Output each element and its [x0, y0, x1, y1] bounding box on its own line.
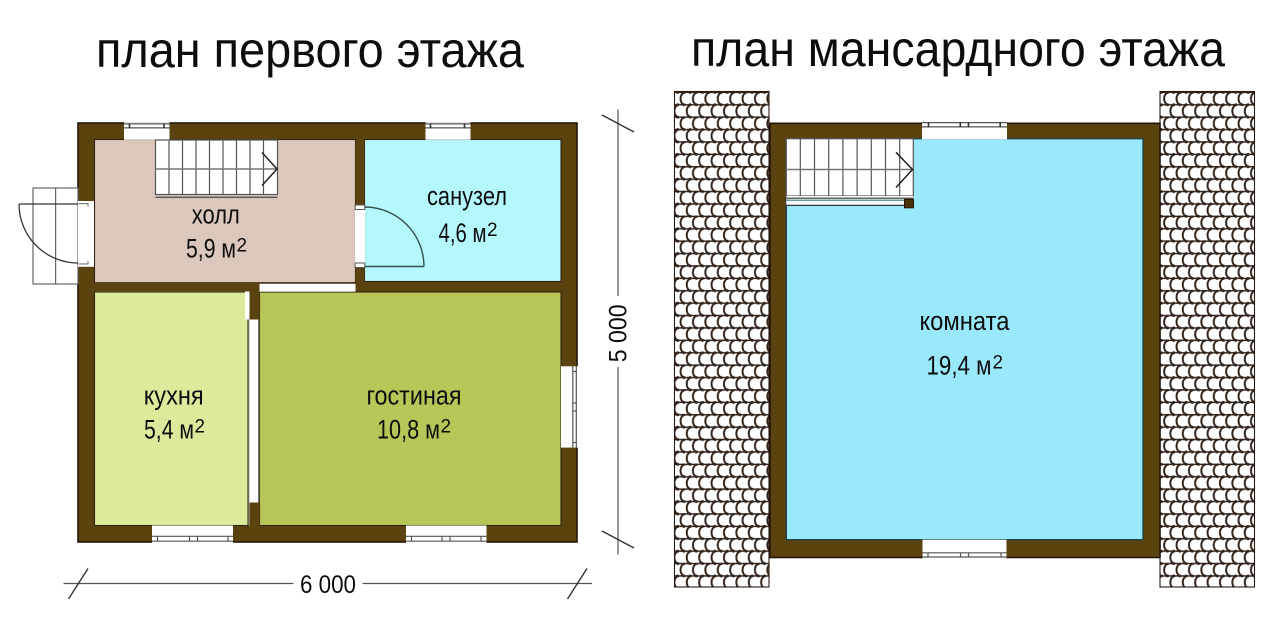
- svg-text:2: 2: [441, 417, 452, 438]
- svg-text:10,8 м: 10,8 м: [377, 415, 440, 445]
- svg-text:19,4 м: 19,4 м: [927, 351, 992, 381]
- svg-text:2: 2: [487, 220, 498, 241]
- svg-text:комната: комната: [920, 306, 1011, 336]
- svg-text:кухня: кухня: [144, 381, 204, 411]
- svg-text:2: 2: [993, 353, 1004, 374]
- svg-text:5,9 м: 5,9 м: [186, 234, 236, 264]
- svg-text:2: 2: [195, 417, 206, 438]
- svg-text:холл: холл: [192, 200, 240, 230]
- svg-text:6 000: 6 000: [300, 571, 356, 599]
- svg-text:4,6 м: 4,6 м: [439, 218, 487, 248]
- svg-text:5,4 м: 5,4 м: [144, 415, 194, 445]
- svg-text:5 000: 5 000: [605, 304, 633, 362]
- svg-text:план мансардного этажа: план мансардного этажа: [691, 21, 1225, 77]
- svg-text:план первого этажа: план первого этажа: [96, 22, 524, 78]
- svg-text:гостиная: гостиная: [367, 381, 462, 411]
- svg-text:санузел: санузел: [427, 181, 507, 211]
- svg-text:2: 2: [237, 236, 248, 257]
